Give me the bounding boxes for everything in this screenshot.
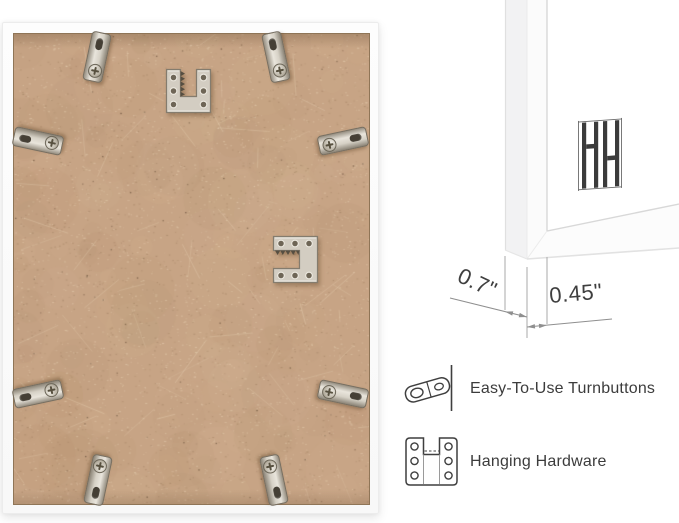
frame-left-rail (527, 0, 547, 259)
turnbutton-icon (403, 362, 461, 416)
turnbutton-slot (19, 134, 32, 143)
turnbutton-screw (321, 383, 338, 400)
product-image: 0.7" 0.45" Easy-To-Use Turnbuttons (0, 0, 679, 523)
turnbutton-screw (86, 62, 103, 79)
dimension-depth-label: 0.7" (454, 263, 501, 303)
feature-legend: Easy-To-Use Turnbuttons Hanging Hardware (403, 362, 655, 488)
turnbutton (259, 453, 289, 506)
turnbutton (11, 379, 64, 409)
turnbutton-screw (43, 135, 60, 152)
turnbutton-slot (95, 38, 104, 51)
turnbutton (11, 126, 64, 156)
legend-label-turnbuttons: Easy-To-Use Turnbuttons (470, 380, 655, 398)
frame-back (2, 22, 379, 514)
turnbutton-screw (271, 62, 288, 79)
dimension-face-width-label: 0.45" (548, 278, 603, 308)
legend-label-hanging-hardware: Hanging Hardware (470, 453, 607, 471)
turnbutton (316, 126, 369, 156)
legend-item-turnbuttons: Easy-To-Use Turnbuttons (403, 362, 655, 416)
turnbutton (316, 379, 369, 409)
hanging-hardware-plate (165, 68, 212, 119)
hanging-hardware-icon (403, 436, 461, 488)
frame-side-face (505, 0, 527, 259)
turnbutton-slot (273, 486, 282, 499)
frame-mat (547, 0, 679, 231)
legend-item-hanging-hardware: Hanging Hardware (403, 436, 655, 488)
turnbutton-screw (322, 136, 339, 153)
turnbutton (82, 30, 112, 83)
turnbutton (261, 30, 291, 83)
turnbutton-screw (262, 459, 279, 476)
turnbutton (83, 453, 113, 506)
turnbutton-slot (349, 133, 362, 142)
hanging-hardware-plate (272, 235, 319, 289)
turnbutton-slot (268, 38, 277, 51)
turnbutton-slot (19, 393, 32, 402)
hardware-layer (3, 23, 378, 513)
dimension-face-width: 0.45" (527, 278, 612, 329)
turnbutton-slot (91, 486, 100, 499)
turnbutton-screw (43, 382, 60, 399)
dimension-depth: 0.7" (450, 263, 528, 319)
frame-corner-detail: 0.7" 0.45" (430, 0, 679, 345)
turnbutton-screw (92, 458, 109, 475)
turnbutton-slot (349, 392, 362, 401)
